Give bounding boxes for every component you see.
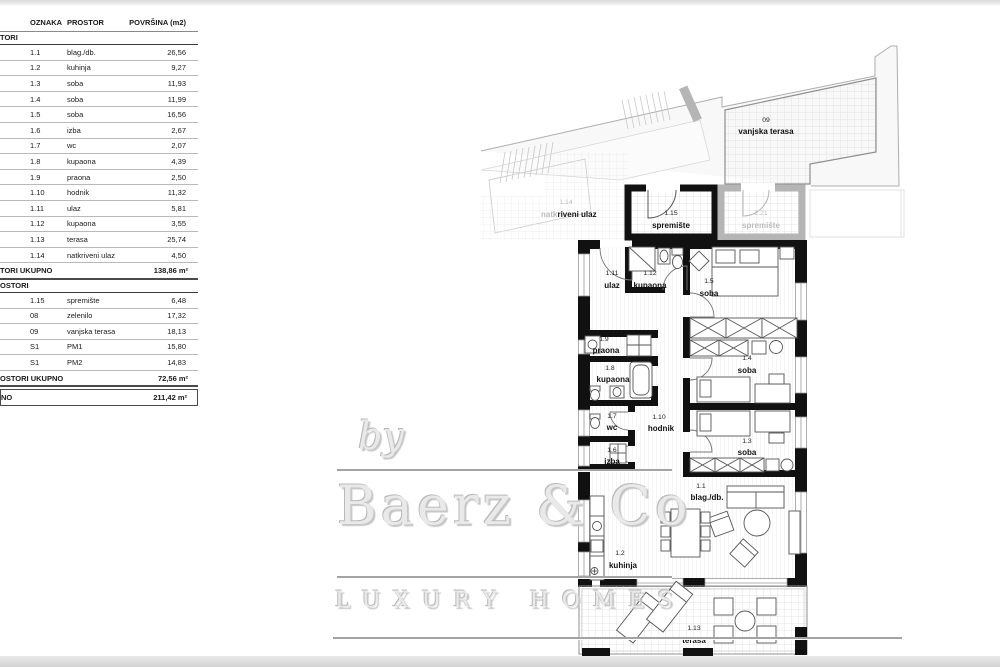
room-label-vanjska-terasa: vanjska terasa [738,127,794,136]
sink [658,248,670,264]
room-label-izba-id: 1.6 [607,447,617,454]
kitchen-sink [593,522,602,531]
sofa [727,486,784,508]
room-label-spremiste-id: 1.15 [664,210,677,217]
sink [610,386,624,398]
room-label-kupaona112: kupaona [634,281,667,290]
room-label-ulaz-id: 1.11 [606,270,619,277]
page: OZNAKA PROSTOR POVRŠINA (m2) TORI 1.1bla… [0,0,1000,667]
floor-plan: 09 vanjska terasa 1.14 natkriveni ulaz 1… [0,0,1000,667]
tv-shelf [789,511,800,554]
room-label-terasa-id: 1.13 [687,625,700,632]
bathtub [630,362,652,398]
room-label-praona-id: 1.9 [599,336,609,343]
coffee-table [744,510,770,536]
room-label-blagdb-id: 1.1 [696,483,706,490]
room-label-terasa: terasa [682,636,706,645]
wardrobe [690,458,793,472]
room-label-praona: praona [593,346,620,355]
toilet [672,248,683,269]
bottom-edge-bar [0,656,1000,667]
room-label-blagdb: blag./db. [691,493,724,502]
single-bed [697,377,750,402]
room-label-soba13-id: 1.3 [742,438,752,445]
room-label-wc: wc [606,423,618,432]
room-label-spremiste: spremište [652,221,690,230]
kitchen-counter [590,496,604,580]
stove [591,540,603,552]
room-label-kuhinja-id: 1.2 [615,550,625,557]
room-label-hodnik: hodnik [648,424,675,433]
room-label-kupaona112-id: 1.12 [643,270,656,277]
toilet [590,386,600,401]
room-label-izba: izba [604,457,620,466]
room-label-vanjska-terasa-id: 09 [762,117,770,124]
room-label-natkriveni-ulaz-id: 1.14 [559,199,572,206]
room-label-soba13: soba [738,448,757,457]
room-label-soba15-id: 1.5 [704,278,714,285]
cabinet [627,335,651,356]
room-label-soba15: soba [700,289,719,298]
room-label-natkriveni-ulaz: natkriveni ulaz [541,210,597,219]
room-label-ulaz: ulaz [604,281,620,290]
room-label-spremiste-susjed: spremište [742,221,780,230]
dining-table [661,509,710,557]
room-label-kupaona18: kupaona [597,375,630,384]
toilet [590,414,600,429]
room-label-spremiste-susjed-id: 2.21 [754,210,767,217]
wardrobe [690,318,797,338]
single-bed [697,411,750,436]
room-label-hodnik-id: 1.10 [652,414,665,421]
room-label-kuhinja: kuhinja [609,561,638,570]
room-label-wc-id: 1.7 [607,413,617,420]
shower [629,247,655,271]
room-label-kupaona18-id: 1.8 [605,365,615,372]
room-label-soba14: soba [738,366,757,375]
room-label-soba14-id: 1.4 [742,355,752,362]
